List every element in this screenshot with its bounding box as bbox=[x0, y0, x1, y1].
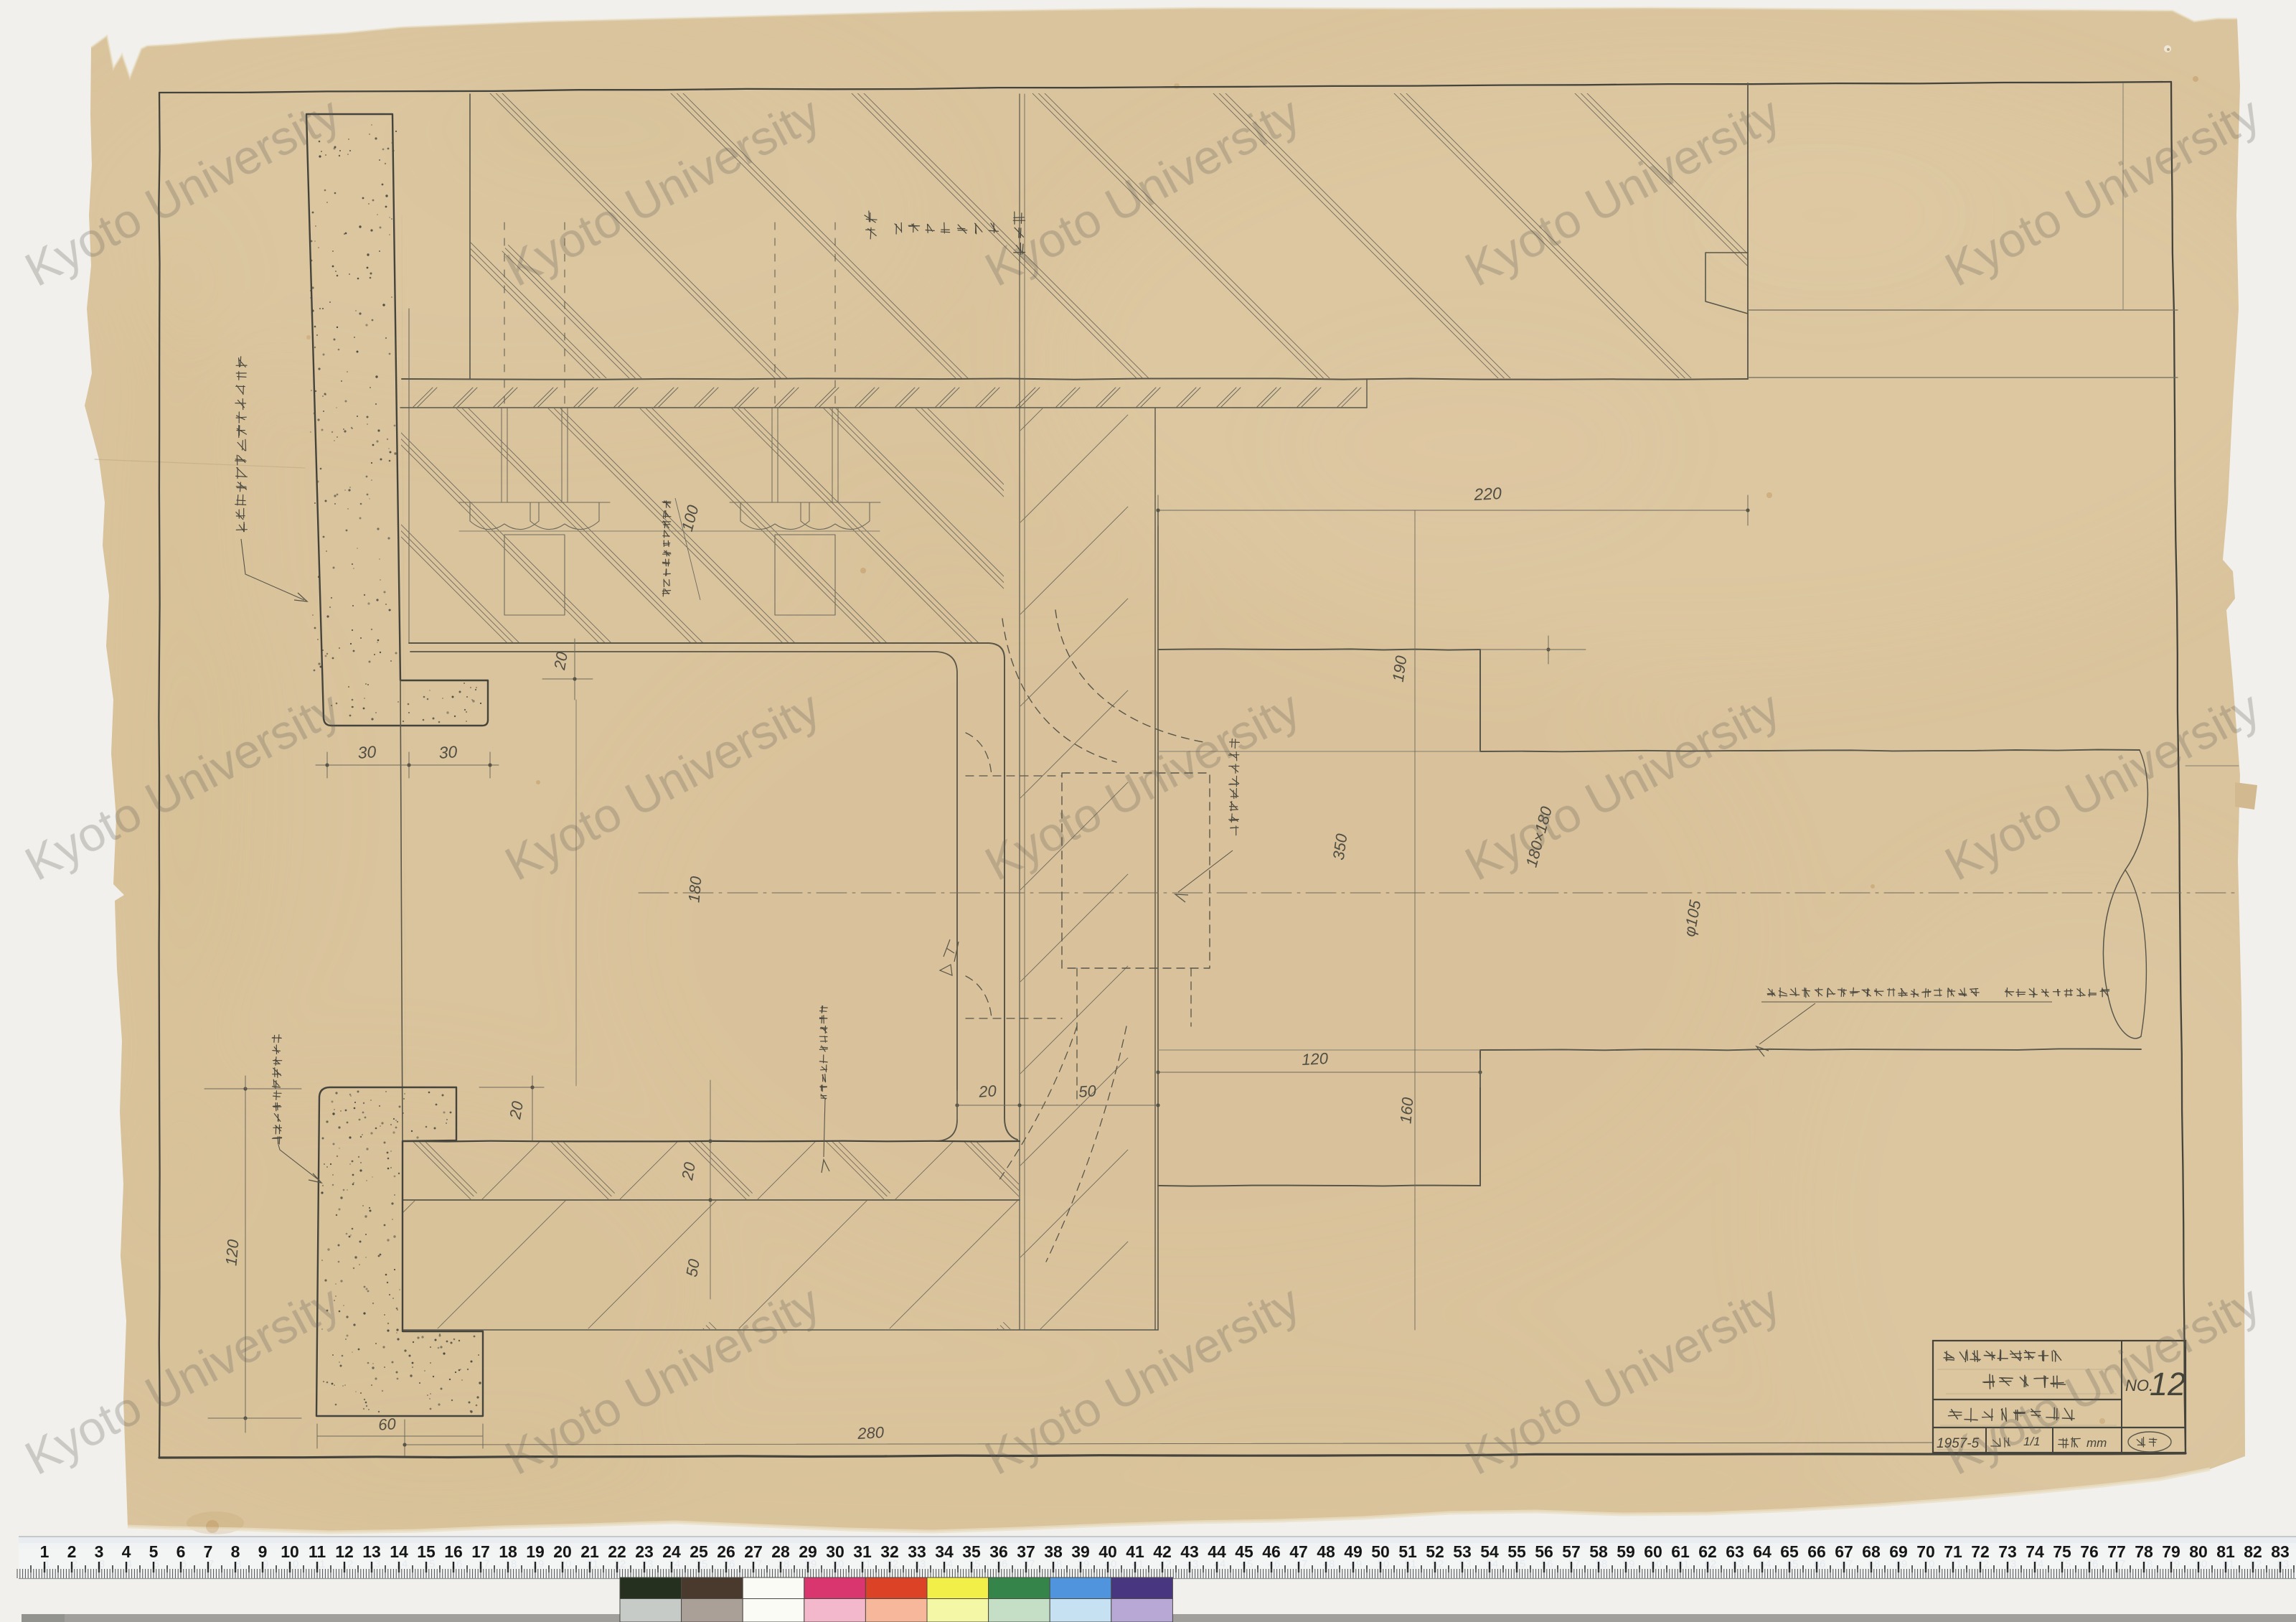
svg-text:40: 40 bbox=[1098, 1542, 1117, 1561]
svg-text:26: 26 bbox=[717, 1542, 735, 1561]
svg-text:54: 54 bbox=[1480, 1542, 1499, 1561]
svg-text:190: 190 bbox=[1389, 654, 1411, 683]
svg-text:39: 39 bbox=[1071, 1542, 1090, 1561]
svg-text:35: 35 bbox=[962, 1542, 981, 1561]
svg-text:55: 55 bbox=[1507, 1542, 1526, 1561]
svg-text:350: 350 bbox=[1330, 832, 1351, 861]
svg-text:16: 16 bbox=[444, 1542, 463, 1561]
svg-text:51: 51 bbox=[1398, 1542, 1417, 1561]
svg-text:10: 10 bbox=[281, 1542, 299, 1561]
svg-text:120: 120 bbox=[1302, 1049, 1330, 1069]
svg-text:22: 22 bbox=[608, 1542, 626, 1561]
svg-text:19: 19 bbox=[526, 1542, 545, 1561]
svg-text:45: 45 bbox=[1235, 1542, 1253, 1561]
svg-text:30: 30 bbox=[438, 742, 458, 762]
svg-text:21: 21 bbox=[580, 1542, 599, 1561]
svg-text:18: 18 bbox=[499, 1542, 517, 1561]
svg-text:34: 34 bbox=[935, 1542, 954, 1561]
svg-text:73: 73 bbox=[1998, 1542, 2017, 1561]
svg-text:37: 37 bbox=[1017, 1542, 1035, 1561]
svg-text:13: 13 bbox=[362, 1542, 381, 1561]
svg-text:43: 43 bbox=[1180, 1542, 1199, 1561]
svg-text:4: 4 bbox=[122, 1542, 131, 1561]
svg-text:30: 30 bbox=[826, 1542, 844, 1561]
svg-text:52: 52 bbox=[1426, 1542, 1444, 1561]
svg-text:7: 7 bbox=[204, 1542, 213, 1561]
svg-text:70: 70 bbox=[1916, 1542, 1935, 1561]
svg-text:42: 42 bbox=[1153, 1542, 1172, 1561]
svg-text:59: 59 bbox=[1617, 1542, 1635, 1561]
svg-text:56: 56 bbox=[1535, 1542, 1553, 1561]
svg-text:48: 48 bbox=[1317, 1542, 1335, 1561]
svg-text:82: 82 bbox=[2244, 1542, 2262, 1561]
svg-text:53: 53 bbox=[1453, 1542, 1472, 1561]
svg-text:60: 60 bbox=[1644, 1542, 1662, 1561]
svg-text:1: 1 bbox=[40, 1542, 50, 1561]
svg-text:30: 30 bbox=[357, 742, 377, 762]
svg-text:80: 80 bbox=[2189, 1542, 2208, 1561]
svg-text:25: 25 bbox=[690, 1542, 708, 1561]
svg-text:mm: mm bbox=[2086, 1436, 2107, 1450]
svg-text:27: 27 bbox=[744, 1542, 763, 1561]
svg-text:180: 180 bbox=[684, 875, 705, 904]
svg-text:20: 20 bbox=[506, 1100, 527, 1121]
svg-text:2: 2 bbox=[67, 1542, 77, 1561]
svg-text:20: 20 bbox=[553, 1542, 572, 1561]
svg-text:36: 36 bbox=[989, 1542, 1008, 1561]
svg-text:220: 220 bbox=[1473, 484, 1502, 504]
svg-text:15: 15 bbox=[417, 1542, 436, 1561]
svg-text:47: 47 bbox=[1289, 1542, 1308, 1561]
svg-text:14: 14 bbox=[390, 1542, 408, 1561]
svg-text:160: 160 bbox=[1396, 1096, 1416, 1125]
svg-text:60: 60 bbox=[377, 1415, 397, 1434]
svg-text:11: 11 bbox=[309, 1542, 326, 1561]
svg-text:69: 69 bbox=[1889, 1542, 1908, 1561]
svg-text:9: 9 bbox=[258, 1542, 268, 1561]
svg-text:31: 31 bbox=[853, 1542, 872, 1561]
svg-text:32: 32 bbox=[880, 1542, 899, 1561]
svg-text:5: 5 bbox=[149, 1542, 159, 1561]
svg-text:20: 20 bbox=[678, 1161, 699, 1182]
svg-text:76: 76 bbox=[2080, 1542, 2099, 1561]
svg-text:81: 81 bbox=[2216, 1542, 2235, 1561]
svg-text:79: 79 bbox=[2162, 1542, 2180, 1561]
svg-text:66: 66 bbox=[1807, 1542, 1826, 1561]
svg-text:38: 38 bbox=[1044, 1542, 1063, 1561]
svg-text:20: 20 bbox=[977, 1082, 997, 1101]
svg-text:64: 64 bbox=[1753, 1542, 1772, 1561]
svg-text:67: 67 bbox=[1835, 1542, 1853, 1561]
svg-text:62: 62 bbox=[1698, 1542, 1717, 1561]
svg-text:61: 61 bbox=[1671, 1542, 1690, 1561]
svg-text:46: 46 bbox=[1262, 1542, 1281, 1561]
svg-text:33: 33 bbox=[908, 1542, 926, 1561]
svg-text:8: 8 bbox=[231, 1542, 240, 1561]
svg-text:17: 17 bbox=[471, 1542, 490, 1561]
svg-text:29: 29 bbox=[799, 1542, 817, 1561]
svg-text:74: 74 bbox=[2026, 1542, 2044, 1561]
svg-text:3: 3 bbox=[95, 1542, 104, 1561]
svg-text:50: 50 bbox=[1371, 1542, 1390, 1561]
svg-text:24: 24 bbox=[662, 1542, 681, 1561]
svg-text:44: 44 bbox=[1208, 1542, 1226, 1561]
svg-text:28: 28 bbox=[771, 1542, 790, 1561]
svg-text:83: 83 bbox=[2271, 1542, 2290, 1561]
svg-text:58: 58 bbox=[1589, 1542, 1608, 1561]
svg-text:63: 63 bbox=[1726, 1542, 1744, 1561]
svg-text:49: 49 bbox=[1344, 1542, 1363, 1561]
svg-text:20: 20 bbox=[550, 650, 571, 672]
svg-text:68: 68 bbox=[1862, 1542, 1881, 1561]
svg-text:77: 77 bbox=[2107, 1542, 2126, 1561]
svg-text:57: 57 bbox=[1562, 1542, 1581, 1561]
svg-text:41: 41 bbox=[1126, 1542, 1144, 1561]
svg-text:50: 50 bbox=[682, 1257, 703, 1278]
svg-text:12: 12 bbox=[335, 1542, 354, 1561]
svg-text:65: 65 bbox=[1780, 1542, 1799, 1561]
svg-text:78: 78 bbox=[2135, 1542, 2153, 1561]
svg-text:72: 72 bbox=[1971, 1542, 1990, 1561]
svg-text:50: 50 bbox=[1078, 1082, 1097, 1101]
svg-text:280: 280 bbox=[857, 1423, 885, 1443]
svg-text:120: 120 bbox=[222, 1238, 242, 1267]
svg-text:75: 75 bbox=[2053, 1542, 2071, 1561]
svg-text:23: 23 bbox=[635, 1542, 654, 1561]
svg-text:71: 71 bbox=[1944, 1542, 1962, 1561]
svg-text:6: 6 bbox=[177, 1542, 186, 1561]
